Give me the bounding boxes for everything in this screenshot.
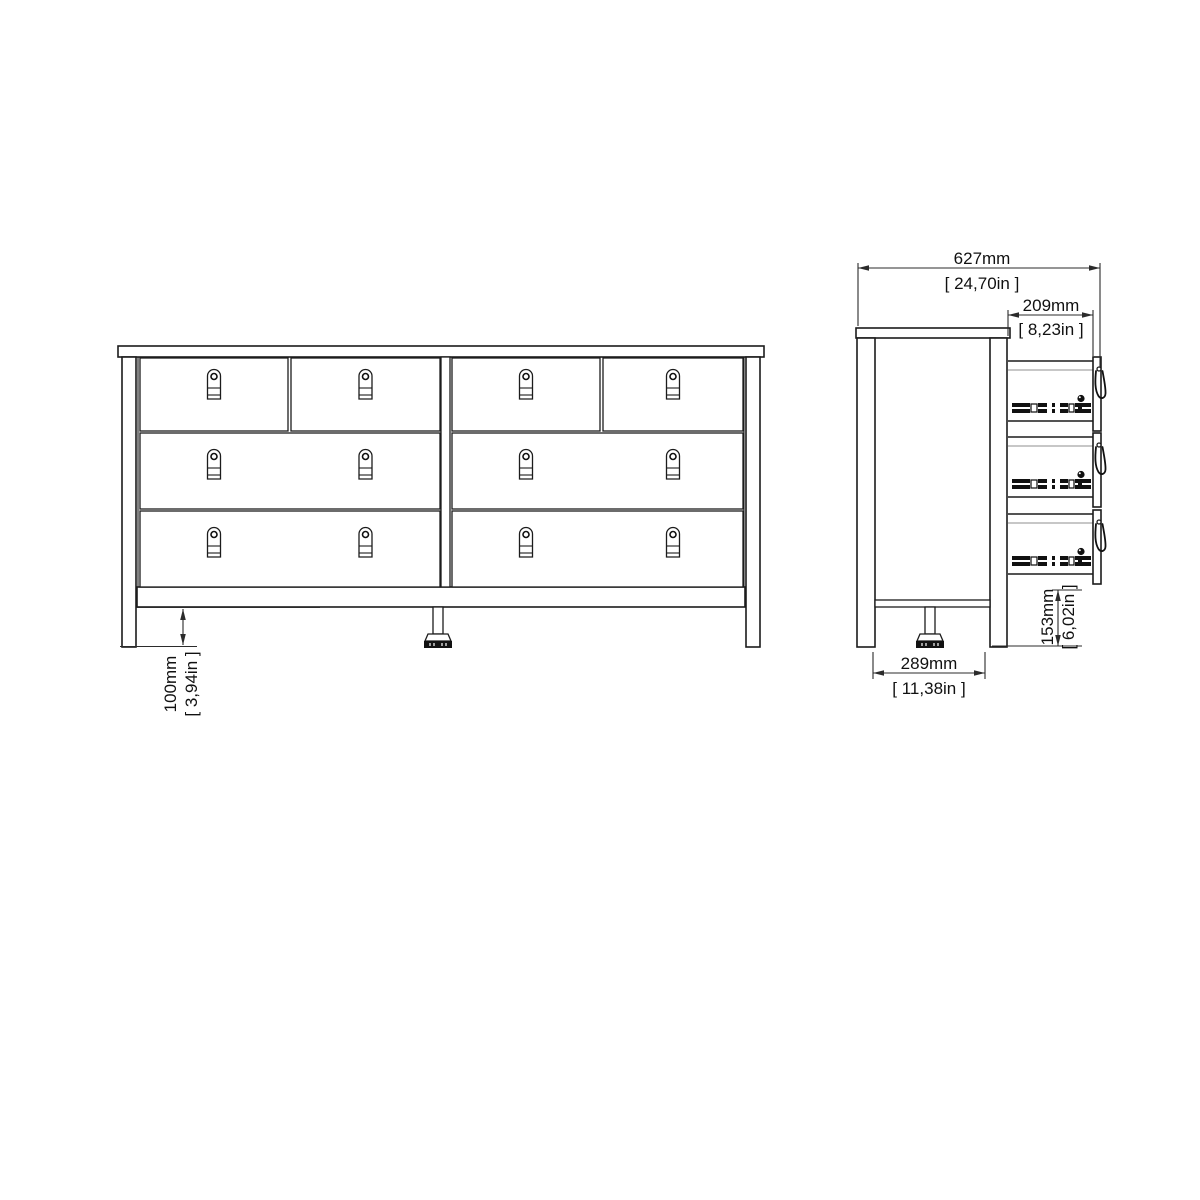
drawer-pull-icon [208, 370, 221, 400]
front-right-leg [746, 357, 760, 647]
front-center-divider [441, 357, 450, 587]
extended-drawer [1008, 357, 1106, 431]
technical-drawing-canvas: 100mm [ 3,94in ] [0, 0, 1200, 1200]
front-bottom-rail [137, 587, 745, 607]
dresser-technical-drawing: 100mm [ 3,94in ] [0, 0, 1200, 1200]
drawer-pull-icon [359, 450, 372, 480]
drawer-pull-icon [520, 528, 533, 558]
dim-open-depth-in-label: [ 24,70in ] [945, 274, 1020, 293]
drawer-pull-icon [520, 370, 533, 400]
dim-drawer-height-in-label: [ 6,02in ] [1059, 584, 1078, 649]
dim-body-depth-in-label: [ 11,38in ] [892, 679, 965, 698]
side-front-leg [990, 338, 1007, 647]
drawer-front [140, 433, 440, 509]
drawer-pull-icon [667, 528, 680, 558]
side-center-foot [916, 607, 944, 648]
drawer-pull-icon [208, 528, 221, 558]
dim-drawer-extension: 209mm [ 8,23in ] [1008, 296, 1093, 356]
front-top-panel [118, 346, 764, 357]
dim-body-depth-mm-label: 289mm [901, 654, 958, 673]
side-bottom-panel [875, 600, 990, 607]
drawer-pull-icon [359, 528, 372, 558]
side-top-panel [856, 328, 1010, 338]
side-rear-leg [857, 338, 875, 647]
front-left-leg [122, 357, 136, 647]
drawer-front [140, 511, 440, 587]
dim-open-depth-mm-label: 627mm [954, 249, 1011, 268]
drawer-pull-icon [667, 370, 680, 400]
front-center-foot [424, 607, 452, 648]
drawer-pull-icon [520, 450, 533, 480]
drawer-front [452, 511, 743, 587]
drawer-pull-icon [359, 370, 372, 400]
front-view: 100mm [ 3,94in ] [118, 346, 764, 717]
dim-drawer-height-mm-label: 153mm [1038, 589, 1057, 646]
dim-base-clearance: 100mm [ 3,94in ] [120, 608, 320, 717]
dim-body-depth: 289mm [ 11,38in ] [873, 652, 985, 698]
extended-drawer [1008, 433, 1106, 507]
drawer-pull-icon [208, 450, 221, 480]
side-extended-drawers [1008, 357, 1106, 584]
dim-base-clearance-mm-label: 100mm [161, 656, 180, 713]
dim-drawer-extension-mm-label: 209mm [1023, 296, 1080, 315]
dim-drawer-extension-in-label: [ 8,23in ] [1018, 320, 1083, 339]
drawer-front [452, 433, 743, 509]
extended-drawer [1008, 510, 1106, 584]
side-view: 627mm [ 24,70in ] 209mm [ 8,23in ] 289mm… [856, 249, 1106, 698]
dim-base-clearance-in-label: [ 3,94in ] [182, 651, 201, 716]
drawer-pull-icon [667, 450, 680, 480]
